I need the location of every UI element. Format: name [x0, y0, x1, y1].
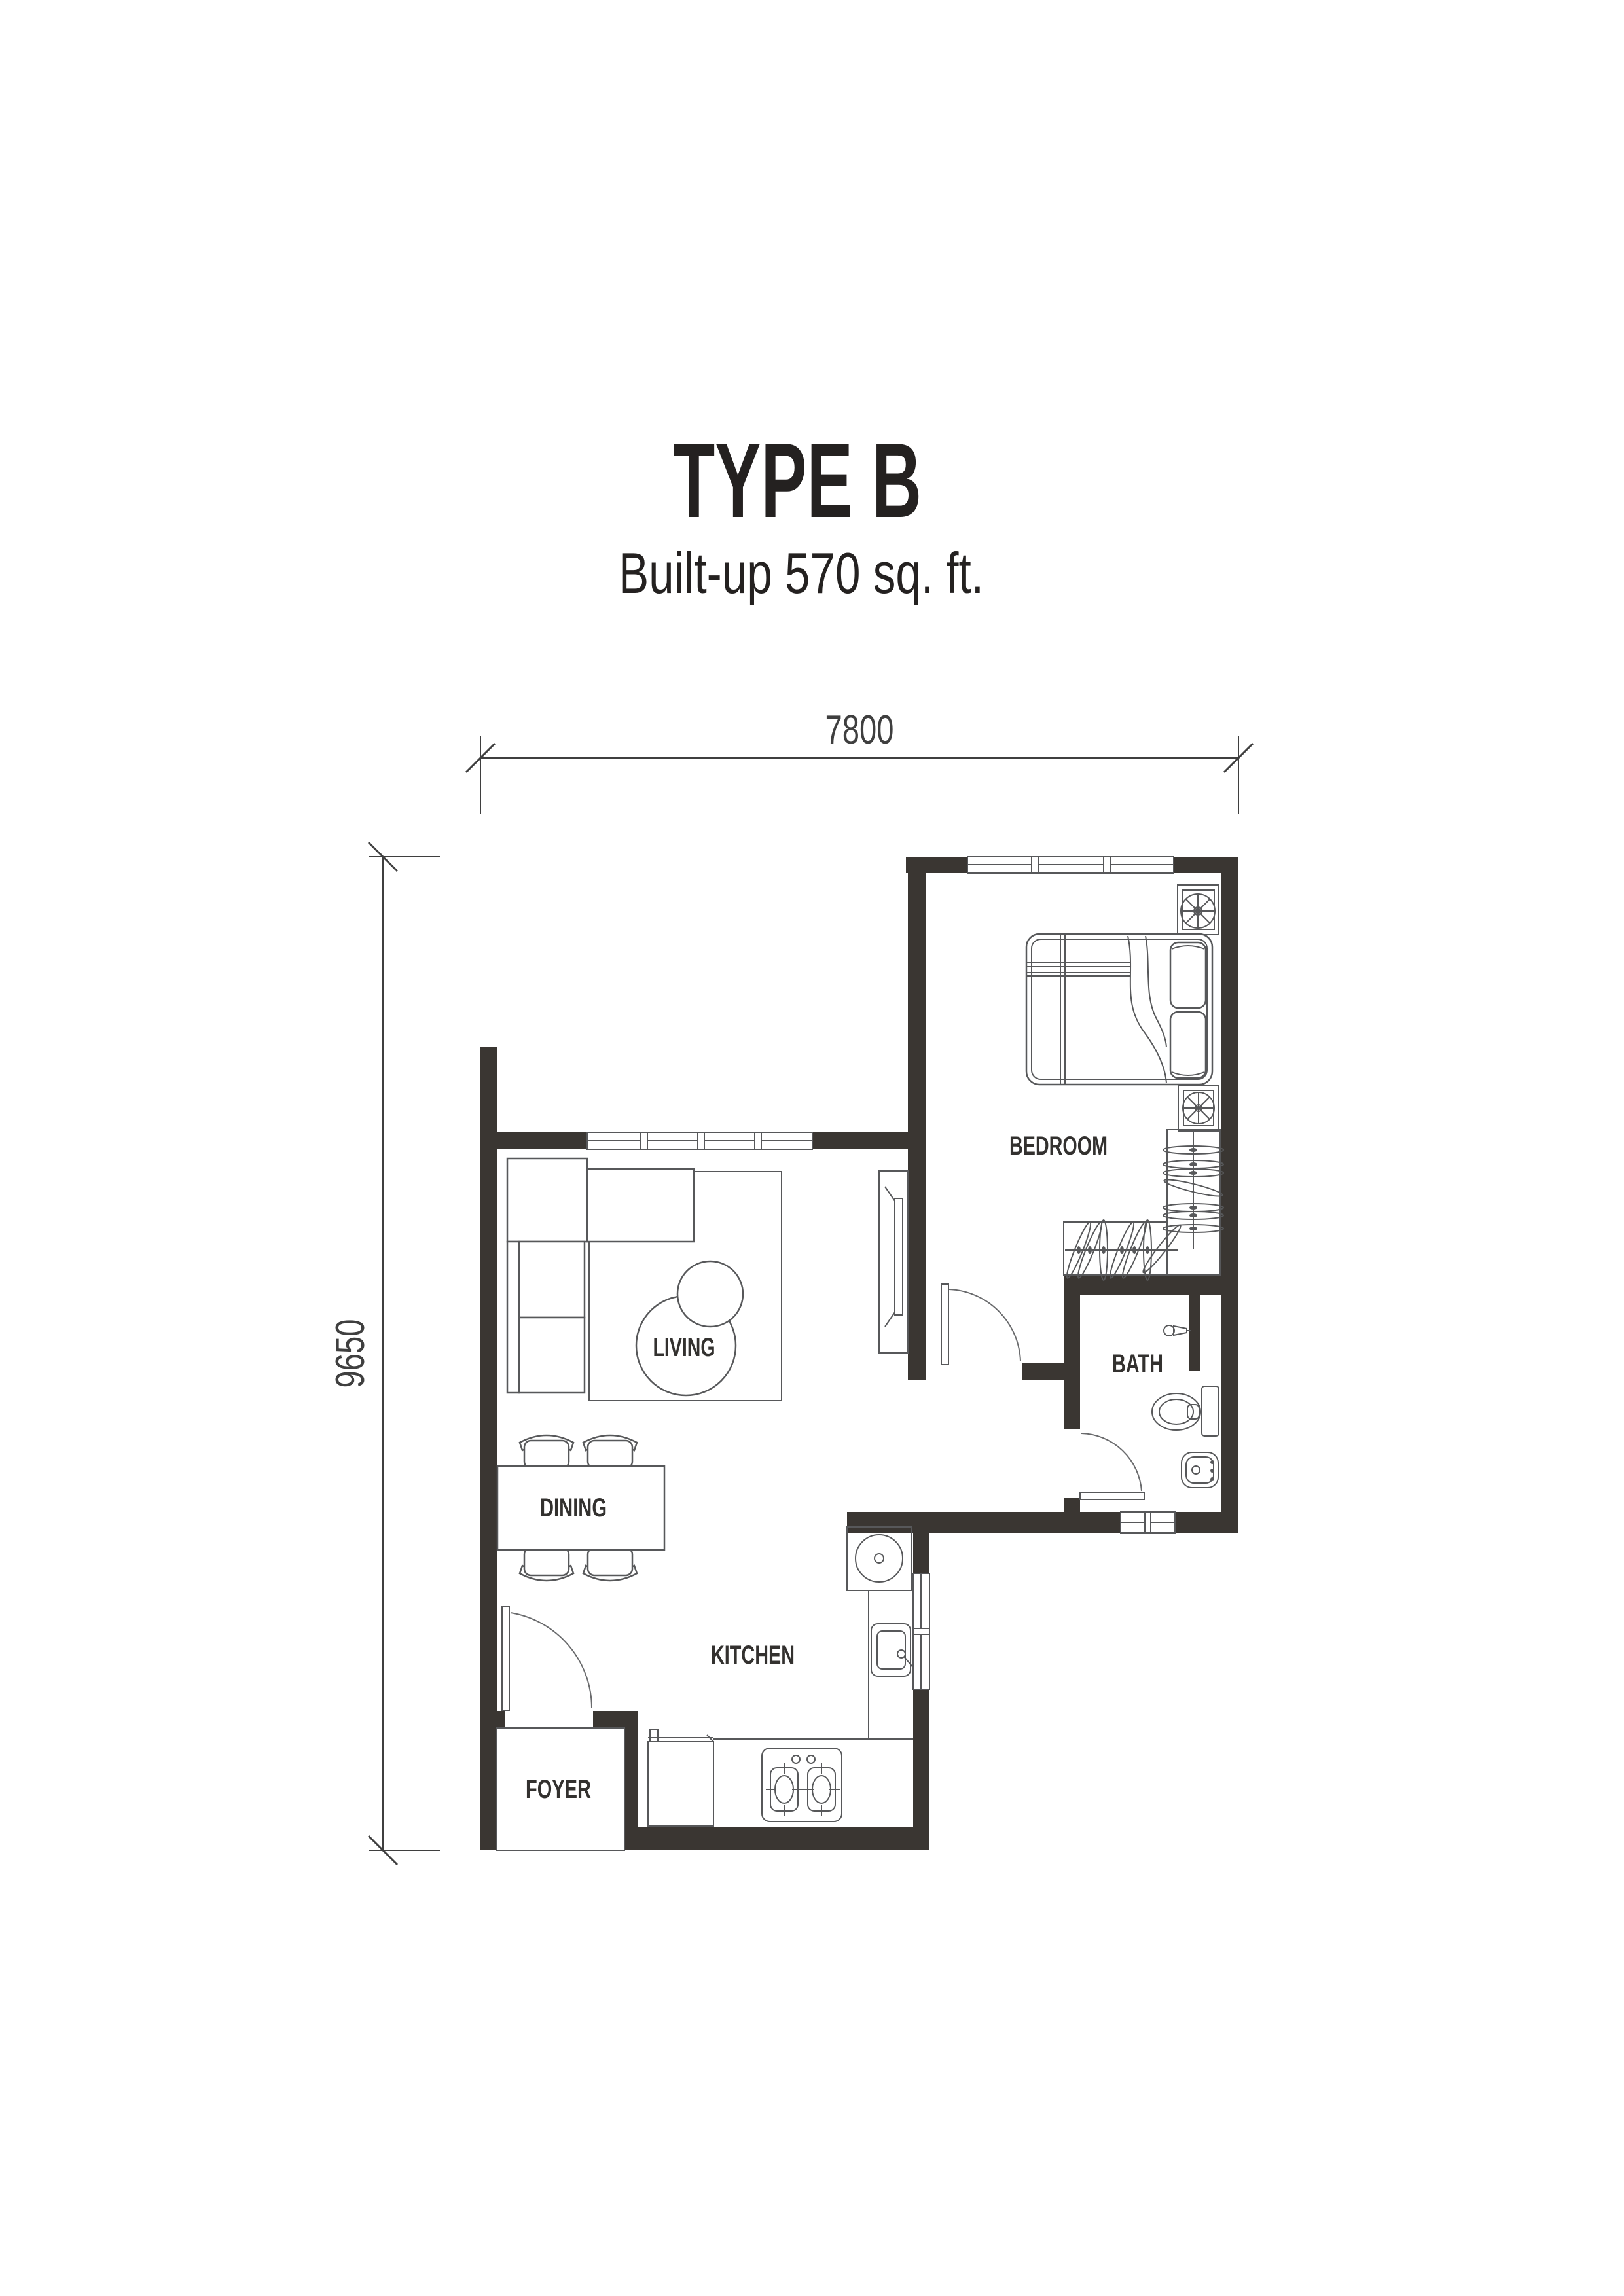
bedroom-label: BEDROOM — [1009, 1132, 1108, 1160]
door-leaf — [941, 1284, 948, 1365]
dining-chair-icon — [583, 1548, 637, 1581]
dim-value-width: 7800 — [825, 708, 894, 753]
wall-segment — [1175, 1512, 1238, 1533]
pillow-icon — [1170, 942, 1206, 1008]
door-leaf — [1080, 1492, 1144, 1499]
wall-segment — [480, 1047, 497, 1850]
ac-ledge-fan-icon — [1178, 885, 1218, 935]
wall-segment — [812, 1132, 908, 1149]
wall-segment — [1064, 1276, 1080, 1429]
floor-plan-page: TYPE B Built-up 570 sq. ft. 7800 9650 — [0, 0, 1624, 2296]
wall-segment — [913, 1533, 929, 1573]
bath-window — [1121, 1512, 1175, 1533]
dimension-left: 9650 — [328, 842, 440, 1865]
wall-segment — [908, 857, 926, 1380]
dining-chair-icon — [520, 1548, 573, 1581]
pillow-icon — [1170, 1012, 1206, 1078]
wall-segment — [480, 1711, 505, 1728]
dining-chair-icon — [520, 1435, 573, 1468]
living-window — [587, 1132, 812, 1149]
bedroom-furniture — [1026, 885, 1223, 1280]
wall-segment — [1064, 1276, 1238, 1295]
basin-icon — [1182, 1452, 1218, 1488]
kitchen-label: KITCHEN — [711, 1641, 795, 1670]
living-furniture — [507, 1158, 908, 1401]
door-swing-arc — [511, 1613, 592, 1708]
title-block: TYPE B Built-up 570 sq. ft. — [619, 422, 984, 605]
stove-knob — [807, 1755, 815, 1763]
kitchen-sink-icon — [871, 1624, 914, 1676]
entry-door — [502, 1607, 592, 1710]
fridge-cabinet-icon — [648, 1729, 713, 1826]
coffee-table-icon — [677, 1261, 743, 1327]
door-leaf — [502, 1607, 509, 1710]
tv-console-icon — [879, 1171, 908, 1353]
bath-door — [1080, 1433, 1144, 1499]
tv-icon — [895, 1198, 903, 1315]
blanket-fold — [1146, 936, 1166, 1047]
handle — [650, 1729, 658, 1742]
washing-machine-icon — [847, 1527, 912, 1590]
windows — [587, 857, 1175, 1689]
plan-subtitle: Built-up 570 sq. ft. — [619, 541, 984, 605]
door-swing-arc — [1081, 1433, 1142, 1491]
wall-segment — [847, 1512, 1121, 1533]
wall-segment — [624, 1711, 638, 1827]
foyer-label: FOYER — [526, 1775, 591, 1804]
bath-label: BATH — [1112, 1350, 1163, 1378]
dining-chair-icon — [583, 1435, 637, 1468]
wall-duct — [1189, 1295, 1200, 1371]
ac-ledge-fan-icon — [1178, 1085, 1219, 1131]
stove-icon — [762, 1748, 842, 1821]
shower-head-icon — [1164, 1325, 1191, 1336]
stove-knob — [792, 1755, 800, 1763]
dim-value-height: 9650 — [328, 1319, 373, 1388]
bedroom-door — [941, 1284, 1020, 1365]
living-label: LIVING — [653, 1333, 715, 1362]
kitchen-furniture — [648, 1527, 914, 1826]
bedroom-window — [967, 857, 1174, 873]
plan-title: TYPE B — [673, 422, 922, 540]
floor-plan-drawing: TYPE B Built-up 570 sq. ft. 7800 9650 — [0, 0, 1624, 2296]
toilet-icon — [1152, 1386, 1219, 1436]
bed-icon — [1026, 934, 1212, 1085]
dimension-top: 7800 — [466, 708, 1253, 814]
door-swing-arc — [949, 1289, 1020, 1361]
wall-segment — [913, 1689, 929, 1850]
wall-segment — [624, 1827, 929, 1850]
wall-segment — [1221, 857, 1238, 1533]
kitchen-window — [913, 1573, 929, 1689]
drain — [1192, 1466, 1200, 1474]
dining-label: DINING — [540, 1494, 607, 1522]
